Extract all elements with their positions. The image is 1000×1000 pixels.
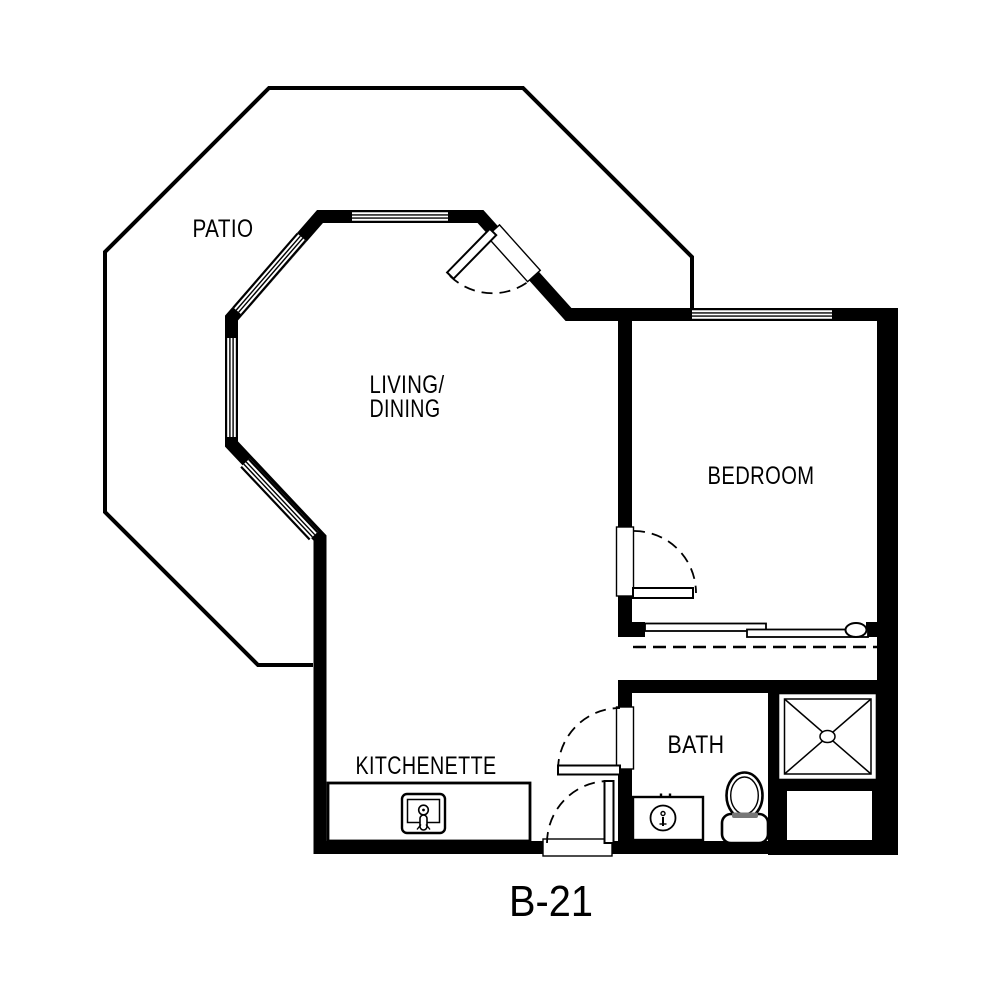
window-icon [233, 233, 307, 316]
entry-door-icon [547, 781, 614, 843]
bedroom-west-wall-upper [618, 318, 632, 530]
floor-plan-page: PATIO LIVING/ DINING BEDROOM KITCHENETTE… [0, 0, 1000, 1000]
bedroom-closet [633, 623, 883, 647]
kitchen-sink-icon [402, 794, 445, 833]
unit-number-label: B-21 [509, 877, 593, 926]
bedroom-door-opening [617, 527, 634, 596]
living-dining-label-line2: DINING [370, 395, 441, 423]
bath-west-wall-lower [618, 767, 632, 843]
entry-door-swing-arc [547, 781, 609, 843]
closet-door-handle-icon [846, 623, 867, 637]
utility-closet-space [787, 791, 872, 840]
toilet-icon [722, 773, 768, 844]
kitchenette-label: KITCHENETTE [356, 752, 497, 780]
kitchenette-fixtures [328, 783, 530, 841]
bedroom-door-swing-arc [634, 531, 696, 593]
bedroom-label: BEDROOM [708, 462, 815, 490]
entry-door-opening [543, 839, 612, 856]
shower-icon [778, 693, 877, 780]
window-icon [352, 210, 448, 223]
bedroom-door-icon [633, 531, 696, 598]
bath-door-icon [558, 708, 620, 775]
bath-label: BATH [668, 731, 725, 759]
window-icon [240, 459, 318, 541]
bedroom-west-wall-lower [618, 595, 632, 623]
right-wall [877, 308, 898, 855]
floor-plan-drawing: PATIO LIVING/ DINING BEDROOM KITCHENETTE… [0, 0, 1000, 1000]
toilet-seat-hinge [732, 813, 758, 819]
window-icon [692, 308, 832, 321]
patio-label: PATIO [193, 215, 254, 243]
bath-vanity-icon [633, 794, 703, 841]
patio-door-swing-arc [450, 276, 534, 293]
window-icon [225, 338, 238, 437]
closet-jamb-left [618, 622, 645, 637]
shower-drain-icon [820, 731, 835, 743]
bath-shower-divider-wall [768, 693, 778, 780]
closet-bath-divider-wall [618, 680, 897, 693]
bath-door-swing-arc [558, 708, 620, 770]
bath-door-opening [617, 707, 634, 769]
